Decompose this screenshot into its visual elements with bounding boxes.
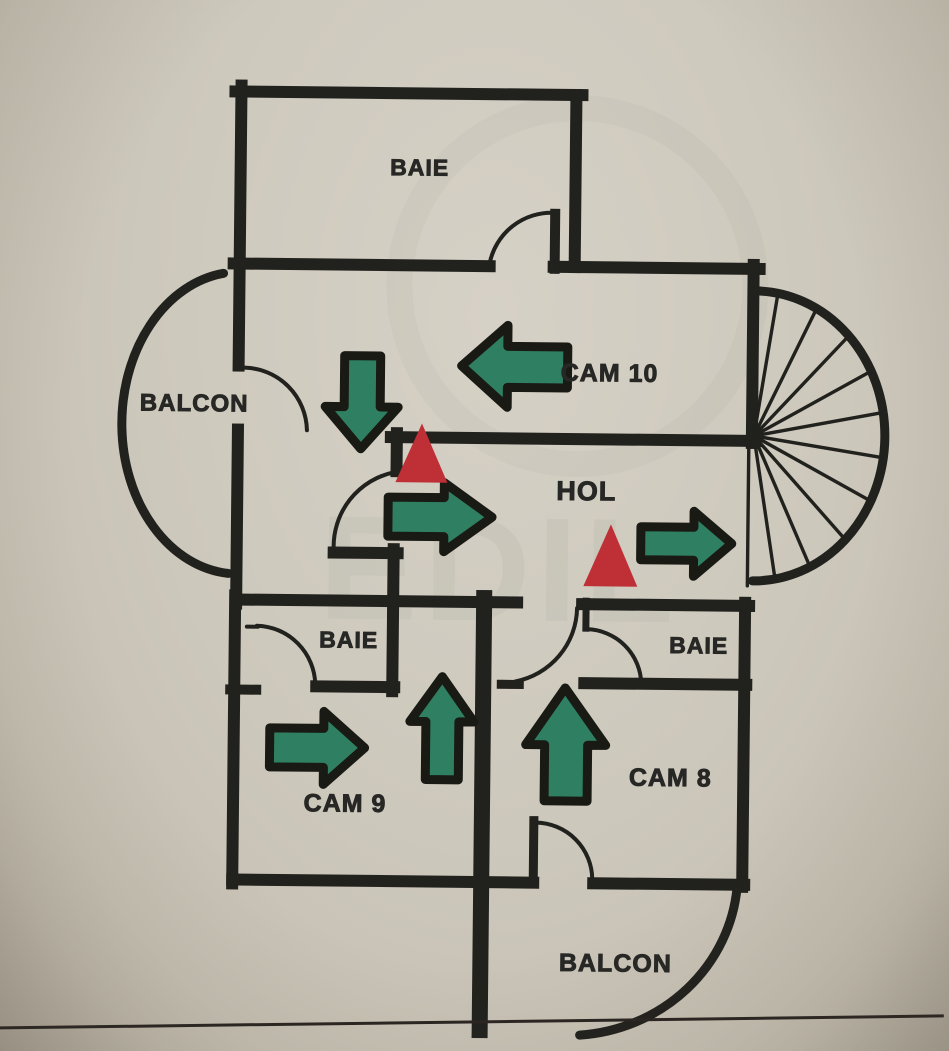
door-leaf-cam8-south <box>533 821 534 879</box>
balcony-left-arc <box>120 272 231 573</box>
wall-baie-top-south-left <box>234 263 490 266</box>
door-arc-cam8-south <box>535 823 593 880</box>
wall-hol-south <box>236 600 517 603</box>
door-arc-baie-top <box>490 212 555 264</box>
wall-hol-west-stub-lower <box>392 549 393 691</box>
wall-baie-top-door-jamb <box>555 214 556 269</box>
wall-baie-right-north <box>582 604 749 606</box>
wall-baie-top-east <box>575 95 577 267</box>
wall-cam9-cam8-divider <box>480 598 485 1030</box>
room-label-baie-top: BAIE <box>390 154 449 181</box>
wall-baie-top-south-right <box>554 267 760 269</box>
wall-baie-top-north <box>235 91 582 95</box>
spiral-staircase <box>747 291 886 587</box>
door-arc-balcony-left <box>244 368 308 431</box>
wall-west-mid <box>236 430 238 604</box>
wall-east-lower <box>742 603 745 887</box>
room-label-baie-mid-left: BAIE <box>319 626 378 653</box>
green-arrow-right-cam9-icon <box>269 711 365 785</box>
wall-west-upper <box>239 86 242 366</box>
room-label-cam-10: CAM 10 <box>561 359 659 388</box>
wall-cam8-south <box>593 883 744 885</box>
staircase-step <box>753 436 810 564</box>
room-label-balcon-bottom: BALCON <box>559 949 672 978</box>
green-arrow-left-icon <box>461 325 568 408</box>
floor-plan-photo: EDIL <box>0 0 949 1051</box>
wall-baie-left-south <box>316 686 394 687</box>
room-label-hol: HOL <box>556 476 616 507</box>
room-label-cam-9: CAM 9 <box>303 789 386 818</box>
staircase-inner-edge <box>747 443 748 586</box>
wall-cam10-hol-divider <box>391 437 756 441</box>
wall-baie-right-south <box>584 683 746 685</box>
wall-corridor-south <box>334 553 398 554</box>
floor-plan: EDIL <box>0 0 949 1051</box>
door-arc-baie-left <box>256 626 316 685</box>
green-arrow-up-cam8-icon <box>525 688 606 802</box>
room-label-cam-8: CAM 8 <box>629 764 712 793</box>
wall-cam9-south <box>232 879 533 882</box>
green-arrow-up-cam9-icon <box>409 676 474 780</box>
wall-cam9-west <box>232 595 235 883</box>
room-label-baie-mid-right: BAIE <box>669 632 728 659</box>
room-label-balcon-left: BALCON <box>140 389 249 417</box>
